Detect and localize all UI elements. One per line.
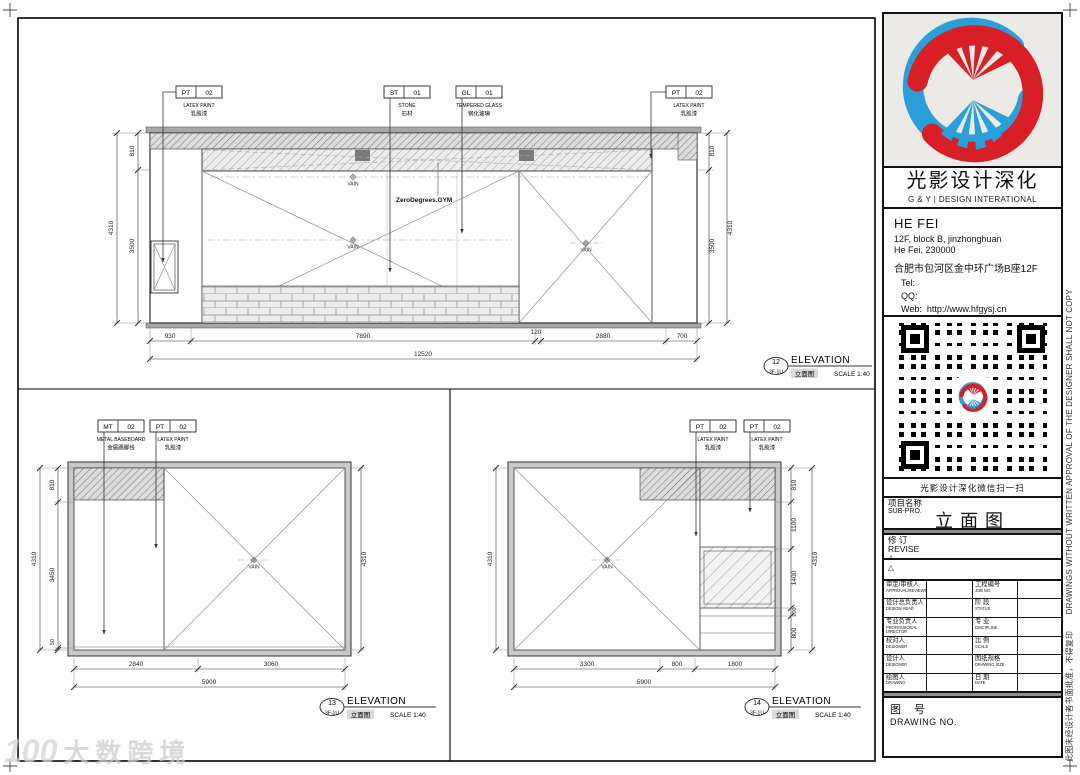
label-num: 01: [413, 90, 421, 97]
cell-label-en: DRAWING SIZE: [975, 663, 1015, 668]
drawing-sheet: VAIN VAIN VAIN ZeroDegrees.GYM PT 02 LAT…: [0, 0, 1080, 775]
dim-text: 4310: [812, 551, 819, 566]
dim-text: 810: [791, 479, 798, 490]
label-code: PT: [156, 424, 164, 431]
revision-row: △: [884, 560, 1061, 581]
office-qq: QQ:: [894, 291, 1061, 301]
elevation-title-cn: 立面图: [351, 710, 371, 719]
dim-text: 5900: [637, 679, 652, 686]
glass-panel: [700, 547, 775, 608]
signoff-table: 审定/审核人APPROVAL/REVIEWER 工程编号JOB NO. 设计总负…: [884, 581, 1061, 693]
label-en: LATEX PAINT: [183, 103, 214, 109]
dim-text: 930: [165, 333, 176, 340]
cell-label-en: JOB NO.: [975, 589, 1015, 594]
cell-label-en: DISCIPLINE: [975, 626, 1015, 631]
cell-value: [927, 674, 973, 691]
dim-text: 5900: [202, 679, 217, 686]
project-name: 立面图: [884, 507, 1061, 530]
cell-value: [1018, 618, 1061, 636]
dim-text: 810: [709, 145, 716, 156]
cell-label-en: PROFESSIONAL DIRECTOR: [886, 626, 924, 635]
label-code: PT: [696, 424, 704, 431]
label-num: 02: [127, 424, 135, 431]
ceiling-band: [640, 468, 775, 500]
center-mark-label: VAIN: [347, 182, 359, 188]
stone-band: [202, 286, 519, 323]
dim-text: 1400: [791, 570, 798, 585]
label-en: LATEX PAINT: [673, 103, 704, 109]
label-code: PT: [750, 424, 758, 431]
dim-text: 1100: [791, 518, 798, 532]
label-cn: 乳胶漆: [705, 444, 722, 452]
elevation-title: ELEVATION: [772, 696, 831, 707]
cell-label-en: DESIGNER: [886, 663, 924, 668]
dim-text: 120: [531, 330, 542, 336]
cell-value: [927, 637, 973, 654]
label-en: LATEX PAINT: [697, 437, 728, 443]
column-block: [678, 133, 697, 160]
elevation-14: VAIN PT 02 LATEX PAINT 乳胶漆 PT 02 LATEX P…: [487, 420, 861, 719]
label-en: TEMPERED GLASS: [456, 103, 503, 109]
elevation-14-walls: [508, 462, 781, 656]
label-num: 02: [719, 424, 727, 431]
label-num: 02: [695, 90, 703, 97]
label-code: MT: [103, 424, 112, 431]
table-row: 审定/审核人APPROVAL/REVIEWER 工程编号JOB NO.: [884, 581, 1061, 599]
dim-text: 7890: [356, 333, 371, 340]
label-en: STONE: [398, 103, 416, 109]
center-mark-label: VAIN: [601, 565, 613, 571]
detail-bubble-13: 13 3F-1U ELEVATION 立面图 SCALE 1:40: [320, 696, 436, 719]
label-cn: 乳胶漆: [681, 110, 698, 118]
elevation-scale: SCALE 1:40: [390, 712, 426, 719]
dim-text: 3500: [129, 238, 136, 253]
cell-value: [1018, 599, 1061, 616]
label-cn: 钢化玻璃: [468, 110, 491, 118]
center-mark-label: VAIN: [248, 565, 260, 571]
cell-label-en: STATUS: [975, 607, 1015, 612]
dim-text: 800: [672, 661, 683, 668]
table-row: 校对人DESIGNER 比 例SCALE: [884, 637, 1061, 655]
dim-text: 2880: [596, 333, 611, 340]
web-label: Web:: [901, 304, 922, 314]
office-city: HE FEI: [894, 216, 1061, 231]
access-door: [151, 241, 178, 293]
cell-value: [927, 581, 973, 598]
floor-slab: [146, 323, 701, 328]
elevation-title-cn: 立面图: [776, 710, 796, 719]
cell-value: [1018, 637, 1061, 654]
elevation-scale: SCALE 1:40: [834, 371, 870, 378]
label-cn: 乳胶漆: [759, 444, 776, 452]
detail-bubble-14: 14 3F-1U ELEVATION 立面图 SCALE 1:40: [745, 696, 861, 719]
company-logo: [884, 14, 1061, 166]
elevation-12-walls: [146, 127, 701, 328]
title-block: 光影设计深化 G & Y | DESIGN INTERATIONAL HE FE…: [882, 12, 1063, 758]
label-code: PT: [672, 90, 680, 97]
dim-text: 4310: [727, 220, 734, 235]
office-address-cn: 合肥市包河区金中环广场B座12F: [894, 260, 1061, 275]
dim-text: 4310: [108, 220, 115, 235]
table-row: 专业负责人PROFESSIONAL DIRECTOR 专 业DISCIPLINE: [884, 618, 1061, 637]
label-en: LATEX PAINT: [157, 437, 188, 443]
cell-value: [1018, 674, 1061, 691]
cell-value: [927, 655, 973, 672]
dim-text: 3500: [709, 238, 716, 253]
label-code: PT: [182, 90, 190, 97]
cell-label-en: DESIGN HEAD: [886, 607, 924, 612]
dim-text: 200: [792, 607, 798, 616]
dim-text: 3450: [49, 567, 56, 582]
dim-text: 2840: [129, 661, 144, 668]
label-num: 02: [179, 424, 187, 431]
copyright-note: 此图未经设计者书面批准，不得复印 DRAWINGS WITHOUT WRITTE…: [1064, 328, 1075, 762]
dim-text: 810: [49, 479, 56, 490]
elevation-13: VAIN MT 02 METAL BASEBOARD 金属踢脚线 PT 02 L…: [31, 420, 436, 719]
dim-text: 4310: [487, 551, 494, 566]
dim-text: 4310: [31, 551, 38, 566]
bubble-number: 14: [753, 700, 761, 707]
project-section: 项目名称 SUB-PRO. 立面图: [884, 498, 1061, 530]
bubble-ref: 3F-1U: [769, 370, 783, 376]
company-name-en: G & Y | DESIGN INTERATIONAL: [884, 195, 1061, 207]
cell-value: [927, 618, 973, 636]
watermark-logo: 100: [4, 733, 57, 770]
qr-finder-icon: [901, 441, 929, 469]
detail-bubble-12: 12 3F-1U ELEVATION 立面图 SCALE 1:40: [764, 355, 872, 378]
dim-text: 3300: [580, 661, 595, 668]
dim-text: 12520: [414, 351, 432, 358]
table-row: 绘图人DRAWING 日 期DATE: [884, 674, 1061, 693]
label-en: METAL BASEBOARD: [97, 437, 146, 443]
company-name-cn: 光影设计深化: [884, 166, 1061, 195]
elevation-12: VAIN VAIN VAIN ZeroDegrees.GYM PT 02 LAT…: [108, 86, 872, 378]
cell-value: [1018, 655, 1061, 672]
bubble-number: 12: [772, 359, 780, 366]
gy-logo-icon: [958, 382, 988, 412]
ceiling-drop: [202, 149, 652, 171]
office-tel: Tel:: [894, 278, 1061, 288]
dim-text: 4310: [361, 551, 368, 566]
elevation-title: ELEVATION: [791, 355, 850, 366]
qr-center-logo: [955, 379, 991, 415]
elevation-scale: SCALE 1:40: [815, 712, 851, 719]
label-num: 01: [485, 90, 493, 97]
dim-text: 50: [50, 639, 56, 645]
cell-label-en: DESIGNER: [886, 645, 924, 650]
ceiling-band: [74, 468, 164, 500]
label-code: ST: [390, 90, 398, 97]
center-mark-label: VAIN: [580, 248, 592, 254]
dim-text: 1800: [728, 661, 743, 668]
drawing-no-section: 图 号 DRAWING NO.: [884, 698, 1061, 730]
drawing-no-label-cn: 图 号: [890, 701, 1055, 717]
label-num: 02: [773, 424, 781, 431]
dim-text: 800: [791, 627, 798, 638]
cell-label-en: DRAWING: [886, 681, 924, 686]
label-cn: 乳胶漆: [191, 110, 208, 118]
cell-value: [927, 599, 973, 616]
office-address-line2: He Fei, 230000: [894, 245, 1061, 256]
label-cn: 金属踢脚线: [107, 444, 135, 452]
dim-text: 700: [677, 333, 688, 340]
bubble-ref: 3F-1U: [325, 711, 339, 717]
cell-value: [1018, 581, 1061, 598]
qr-caption: 光影设计深化微信扫一扫: [884, 477, 1061, 498]
cell-label-en: APPROVAL/REVIEWER: [886, 589, 924, 594]
elevation-13-walls: [68, 462, 351, 656]
cell-label-en: SCALE: [975, 645, 1015, 650]
revise-section: 修 订 REVISE △: [884, 535, 1061, 560]
bubble-number: 13: [328, 700, 336, 707]
label-cn: 石材: [401, 110, 413, 118]
office-info: HE FEI 12F, block B, jinzhonghuan He Fei…: [884, 209, 1061, 317]
label-en: LATEX PAINT: [751, 437, 782, 443]
center-mark-label: VAIN: [347, 245, 359, 251]
dim-text: 810: [129, 145, 136, 156]
qr-finder-icon: [901, 325, 929, 353]
revision-triangle-icon: △: [888, 563, 1057, 572]
top-slab: [146, 127, 701, 133]
web-url: http://www.hfgysj.cn: [927, 304, 1007, 314]
watermark: 100 大数跨境: [4, 733, 191, 770]
qr-finder-icon: [1017, 325, 1045, 353]
elevation-title: ELEVATION: [347, 696, 406, 707]
wechat-qr-section: 光影设计深化微信扫一扫: [884, 317, 1061, 498]
ceiling-band: [150, 133, 697, 149]
label-num: 02: [205, 90, 213, 97]
gy-logo-icon: [900, 17, 1046, 163]
drawing-no-label-en: DRAWING NO.: [890, 717, 1055, 727]
table-row: 设计总负责人DESIGN HEAD 阶 段STATUS: [884, 599, 1061, 617]
qr-code: [899, 323, 1047, 471]
watermark-text: 大数跨境: [63, 733, 191, 770]
office-address-line1: 12F, block B, jinzhonghuan: [894, 234, 1061, 245]
ceiling-inset: [355, 150, 370, 161]
company-section: 光影设计深化 G & Y | DESIGN INTERATIONAL: [884, 14, 1061, 209]
office-web: Web: http://www.hfgysj.cn: [894, 304, 1061, 314]
label-cn: 乳胶漆: [165, 444, 182, 452]
elevation-title-cn: 立面图: [795, 369, 815, 378]
revise-label-en: REVISE: [888, 545, 1057, 554]
table-row: 设计人DESIGNER 图纸规格DRAWING SIZE: [884, 655, 1061, 673]
bubble-ref: 3F-1U: [750, 711, 764, 717]
label-code: GL: [462, 90, 471, 97]
dim-text: 3060: [264, 661, 279, 668]
cell-label-en: DATE: [975, 681, 1015, 686]
sign-text: ZeroDegrees.GYM: [396, 197, 452, 204]
